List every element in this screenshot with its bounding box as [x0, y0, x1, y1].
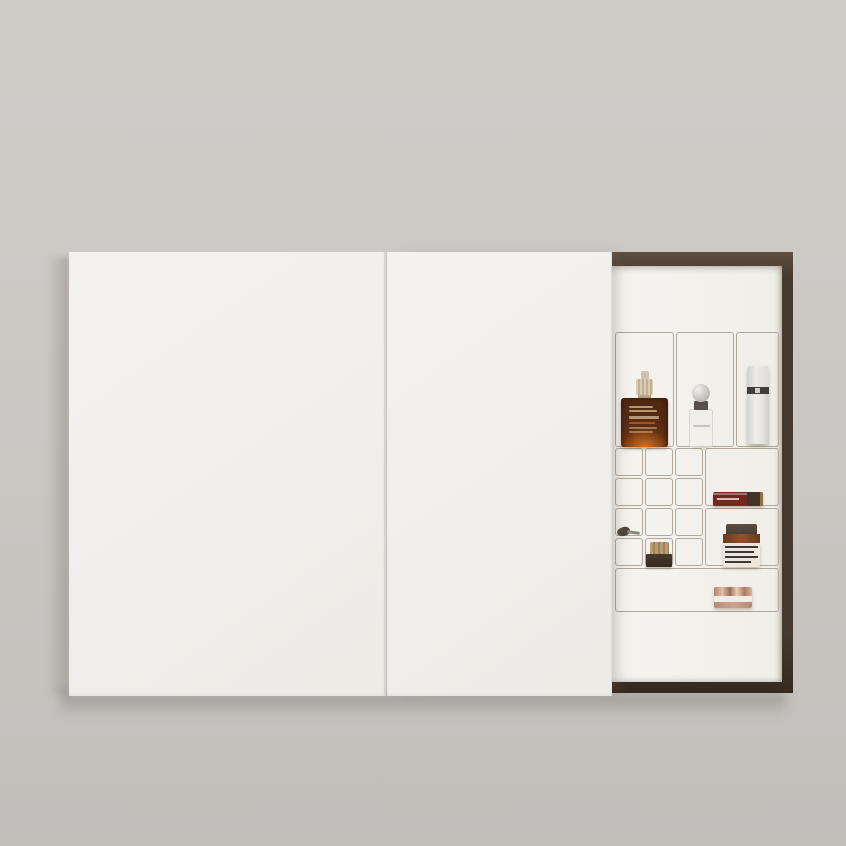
grid-cell-small: [615, 538, 643, 566]
perfume-sphere-cap: [692, 384, 710, 402]
cabinet-side-shadow: [47, 257, 70, 695]
grid-cell-small: [645, 478, 673, 506]
sliding-door-left: [69, 252, 386, 696]
striped-jar: [723, 543, 760, 567]
jar-label-stripe: [725, 546, 758, 548]
serum-label-line: [629, 410, 657, 412]
mini-jar: [646, 554, 672, 567]
pump-bottle-band-window: [755, 388, 760, 393]
rose-compact: [714, 587, 752, 608]
serum-dropper-cap: [636, 379, 653, 395]
jar-label-stripe: [725, 556, 758, 558]
lip-gloss-cap: [747, 492, 760, 506]
grid-cell-small: [615, 478, 643, 506]
grid-cell-small: [675, 508, 703, 536]
striped-jar-lid: [726, 524, 757, 534]
serum-label-line: [629, 416, 659, 419]
compact-metal-lid: [714, 587, 752, 596]
open-compartment-frame: [600, 252, 793, 693]
grid-cell-small: [675, 448, 703, 476]
pump-bottle: [747, 366, 769, 444]
jar-label-stripe: [725, 561, 751, 563]
lip-gloss-gold-tip: [760, 492, 763, 506]
grid-cell-small: [675, 538, 703, 566]
grid-cell-small: [645, 448, 673, 476]
pump-bottle-cap: [747, 366, 769, 387]
scene: [0, 0, 846, 846]
serum-label-line: [629, 406, 653, 408]
grid-cell-bottom-shelf: [615, 568, 779, 612]
grid-cell-small: [645, 508, 673, 536]
jar-label-stripe: [725, 551, 754, 553]
grid-cell-small: [615, 448, 643, 476]
cabinet-drop-shadow: [60, 693, 786, 717]
perfume-bottle: [689, 409, 713, 447]
perfume-collar: [694, 401, 708, 410]
sliding-door-right: [387, 252, 612, 696]
cabinet: [69, 252, 793, 696]
cabinet-interior: [600, 266, 782, 682]
lip-gloss-label-line: [717, 498, 739, 500]
serum-label-accent-line: [629, 422, 655, 424]
lip-gloss: [713, 492, 763, 506]
compact-base: [714, 602, 752, 608]
serum-glass-glow: [621, 429, 668, 447]
grid-cell-small: [675, 478, 703, 506]
striped-jar-glass: [723, 534, 760, 543]
perfume-label-line: [693, 425, 710, 427]
serum-bottle: [621, 398, 668, 447]
